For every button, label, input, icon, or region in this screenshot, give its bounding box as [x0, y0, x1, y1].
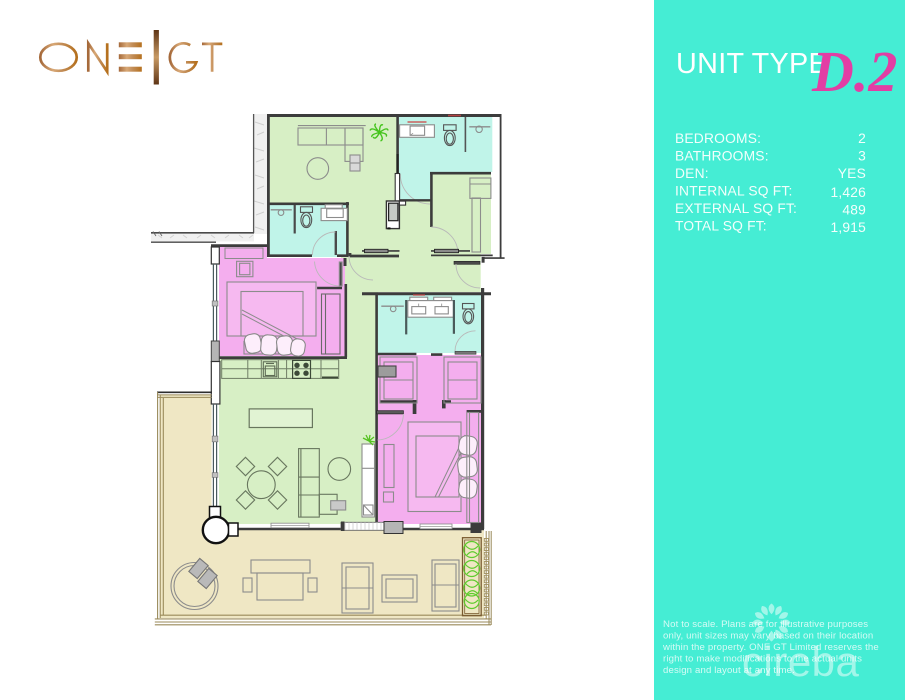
svg-text:D.2: D.2: [811, 39, 897, 104]
svg-text:BEDROOMS:: BEDROOMS:: [675, 131, 761, 146]
svg-text:1,426: 1,426: [830, 185, 866, 200]
svg-text:BATHROOMS:: BATHROOMS:: [675, 149, 769, 164]
svg-text:TOTAL SQ FT:: TOTAL SQ FT:: [675, 219, 767, 234]
svg-text:2: 2: [858, 131, 866, 146]
svg-text:489: 489: [842, 203, 866, 218]
svg-text:3: 3: [858, 149, 866, 164]
svg-text:DEN:: DEN:: [675, 166, 709, 181]
svg-text:Not to scale. Plans are for il: Not to scale. Plans are for illustrative…: [663, 619, 868, 630]
svg-text:YES: YES: [838, 166, 866, 181]
svg-text:EXTERNAL SQ FT:: EXTERNAL SQ FT:: [675, 201, 797, 216]
svg-text:1,915: 1,915: [830, 220, 866, 235]
svg-text:UNIT TYPE: UNIT TYPE: [676, 48, 828, 80]
svg-text:cireba: cireba: [742, 638, 860, 685]
svg-text:INTERNAL SQ FT:: INTERNAL SQ FT:: [675, 184, 792, 199]
